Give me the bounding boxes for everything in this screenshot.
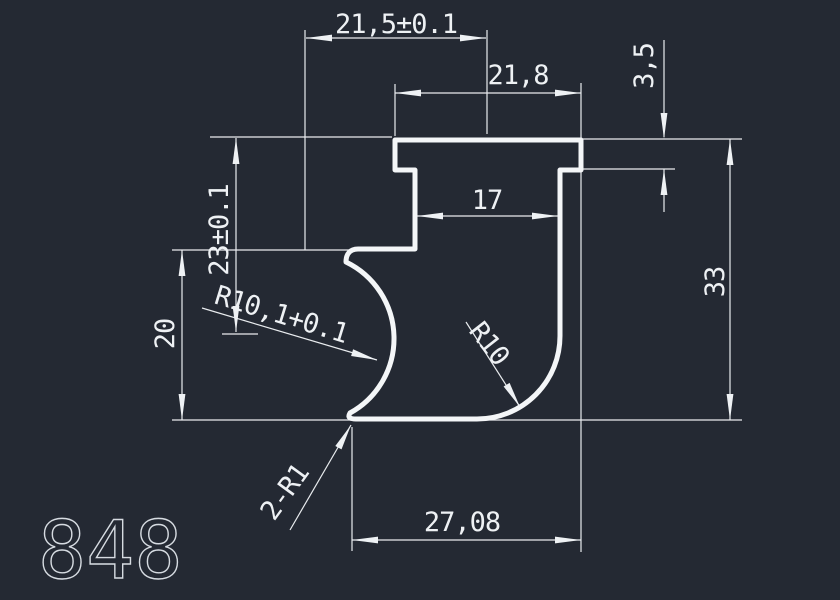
dim-label-flange-thickness: 3,5	[629, 43, 660, 89]
dim-label-flange-width: 21,8	[487, 60, 548, 91]
drawing-number: 848	[38, 504, 183, 597]
dim-label-left-height: 23±0.1	[204, 184, 235, 276]
cad-drawing: 21,5±0.1 21,8 3,5 23±0.1 17 20 33 27,08 …	[0, 0, 840, 600]
dim-label-top-width: 21,5±0.1	[335, 9, 457, 40]
dim-label-overall-height: 33	[700, 267, 731, 298]
dim-label-slot-width: 17	[472, 185, 503, 216]
dim-label-lower-height: 20	[150, 319, 181, 350]
cad-canvas: 21,5±0.1 21,8 3,5 23±0.1 17 20 33 27,08 …	[0, 0, 840, 600]
dim-label-base-width: 27,08	[424, 507, 500, 538]
